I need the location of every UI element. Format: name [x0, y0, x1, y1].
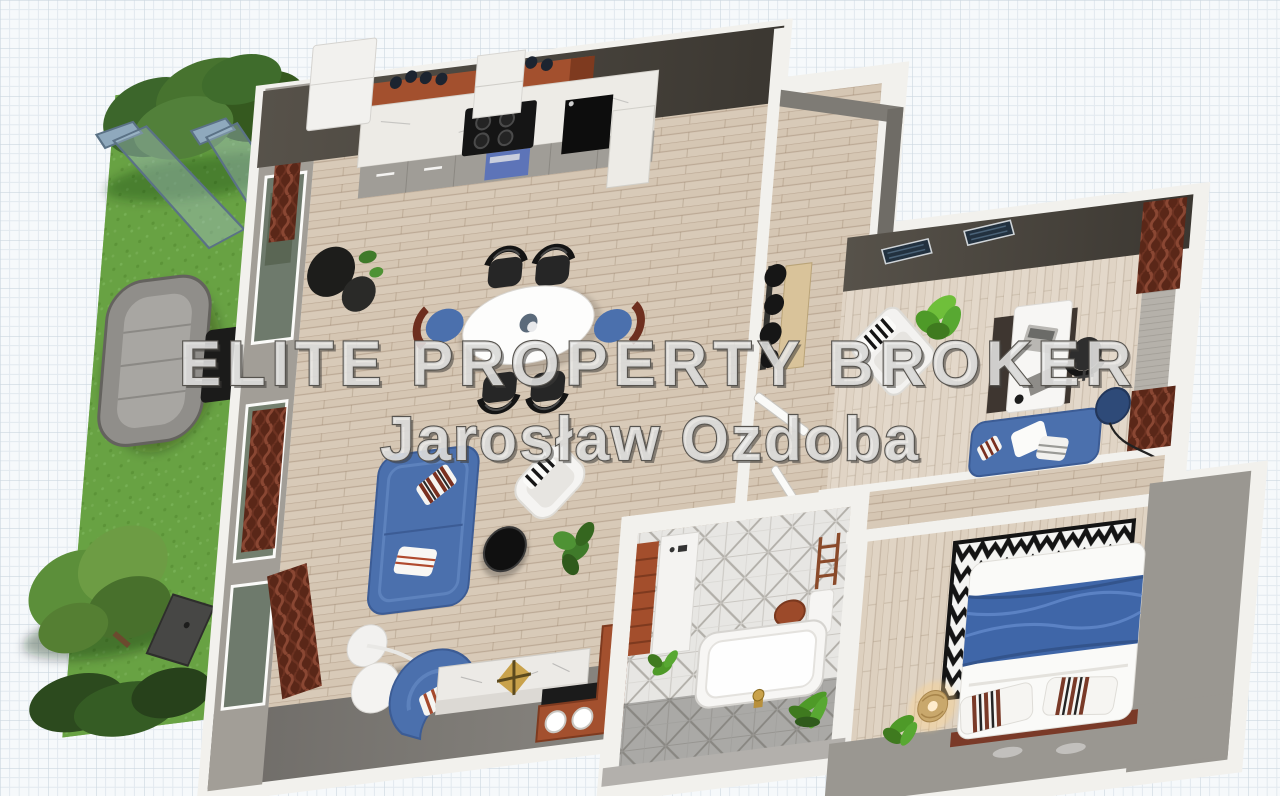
bed-pillow: [1041, 676, 1118, 715]
floor-plan-screenshot: ELITE PROPERTY BROKER ELITE PROPERTY BRO…: [0, 0, 1280, 796]
marble-column: [607, 106, 655, 188]
office-curtain-top: [1136, 197, 1187, 294]
floor-plan-canvas: ELITE PROPERTY BROKER ELITE PROPERTY BRO…: [0, 0, 1280, 796]
bathroom: [599, 486, 870, 789]
watermark-line2: Jarosław Ozdoba: [380, 405, 920, 474]
watermark-line1: ELITE PROPERTY BROKER: [179, 329, 1137, 399]
bed: [950, 541, 1152, 747]
pillow-white: [392, 546, 438, 577]
